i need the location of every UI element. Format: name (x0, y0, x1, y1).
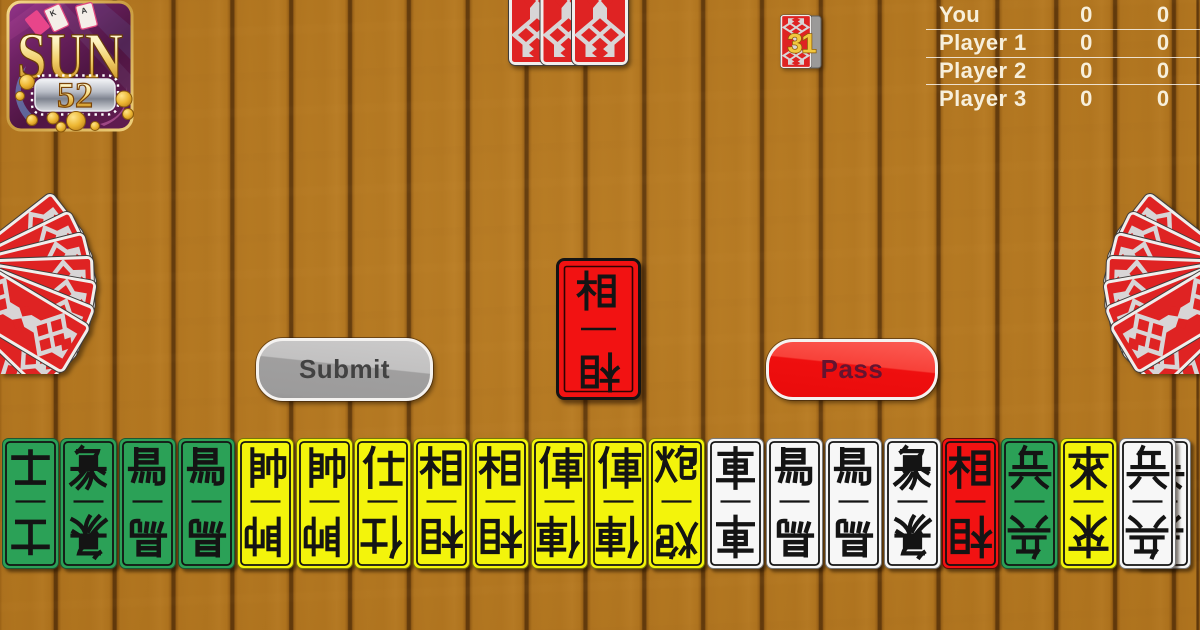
svg-text:52: 52 (57, 75, 93, 115)
svg-text:31: 31 (787, 29, 816, 59)
